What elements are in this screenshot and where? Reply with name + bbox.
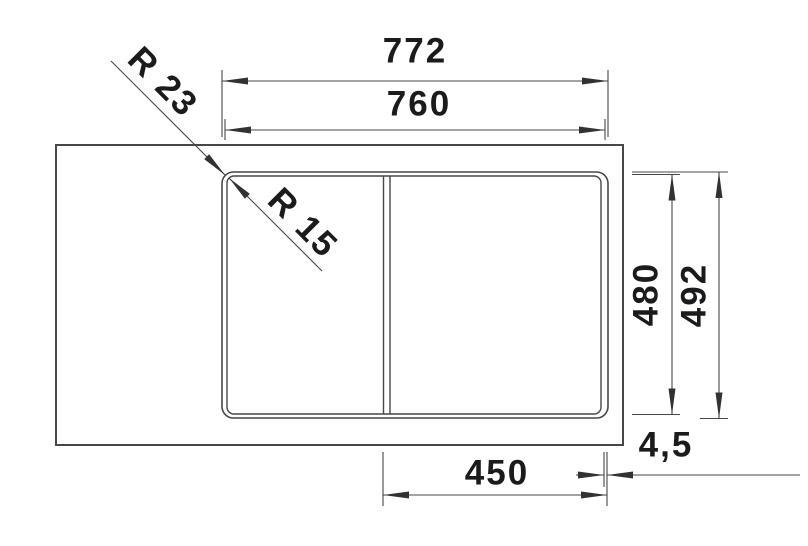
dim-492-label: 492 — [677, 263, 712, 327]
dim-480-label: 480 — [629, 262, 664, 326]
dim-rim-thickness-label: 4,5 — [639, 428, 694, 463]
bowl-divider — [384, 176, 391, 414]
dim-772-label: 772 — [383, 34, 447, 69]
dim-760-label: 760 — [387, 87, 451, 122]
dim-450-label: 450 — [465, 456, 529, 491]
drawing-canvas: 772 760 480 492 450 4,5 R 23 R 15 — [0, 0, 808, 546]
worktop-outline — [56, 145, 623, 445]
